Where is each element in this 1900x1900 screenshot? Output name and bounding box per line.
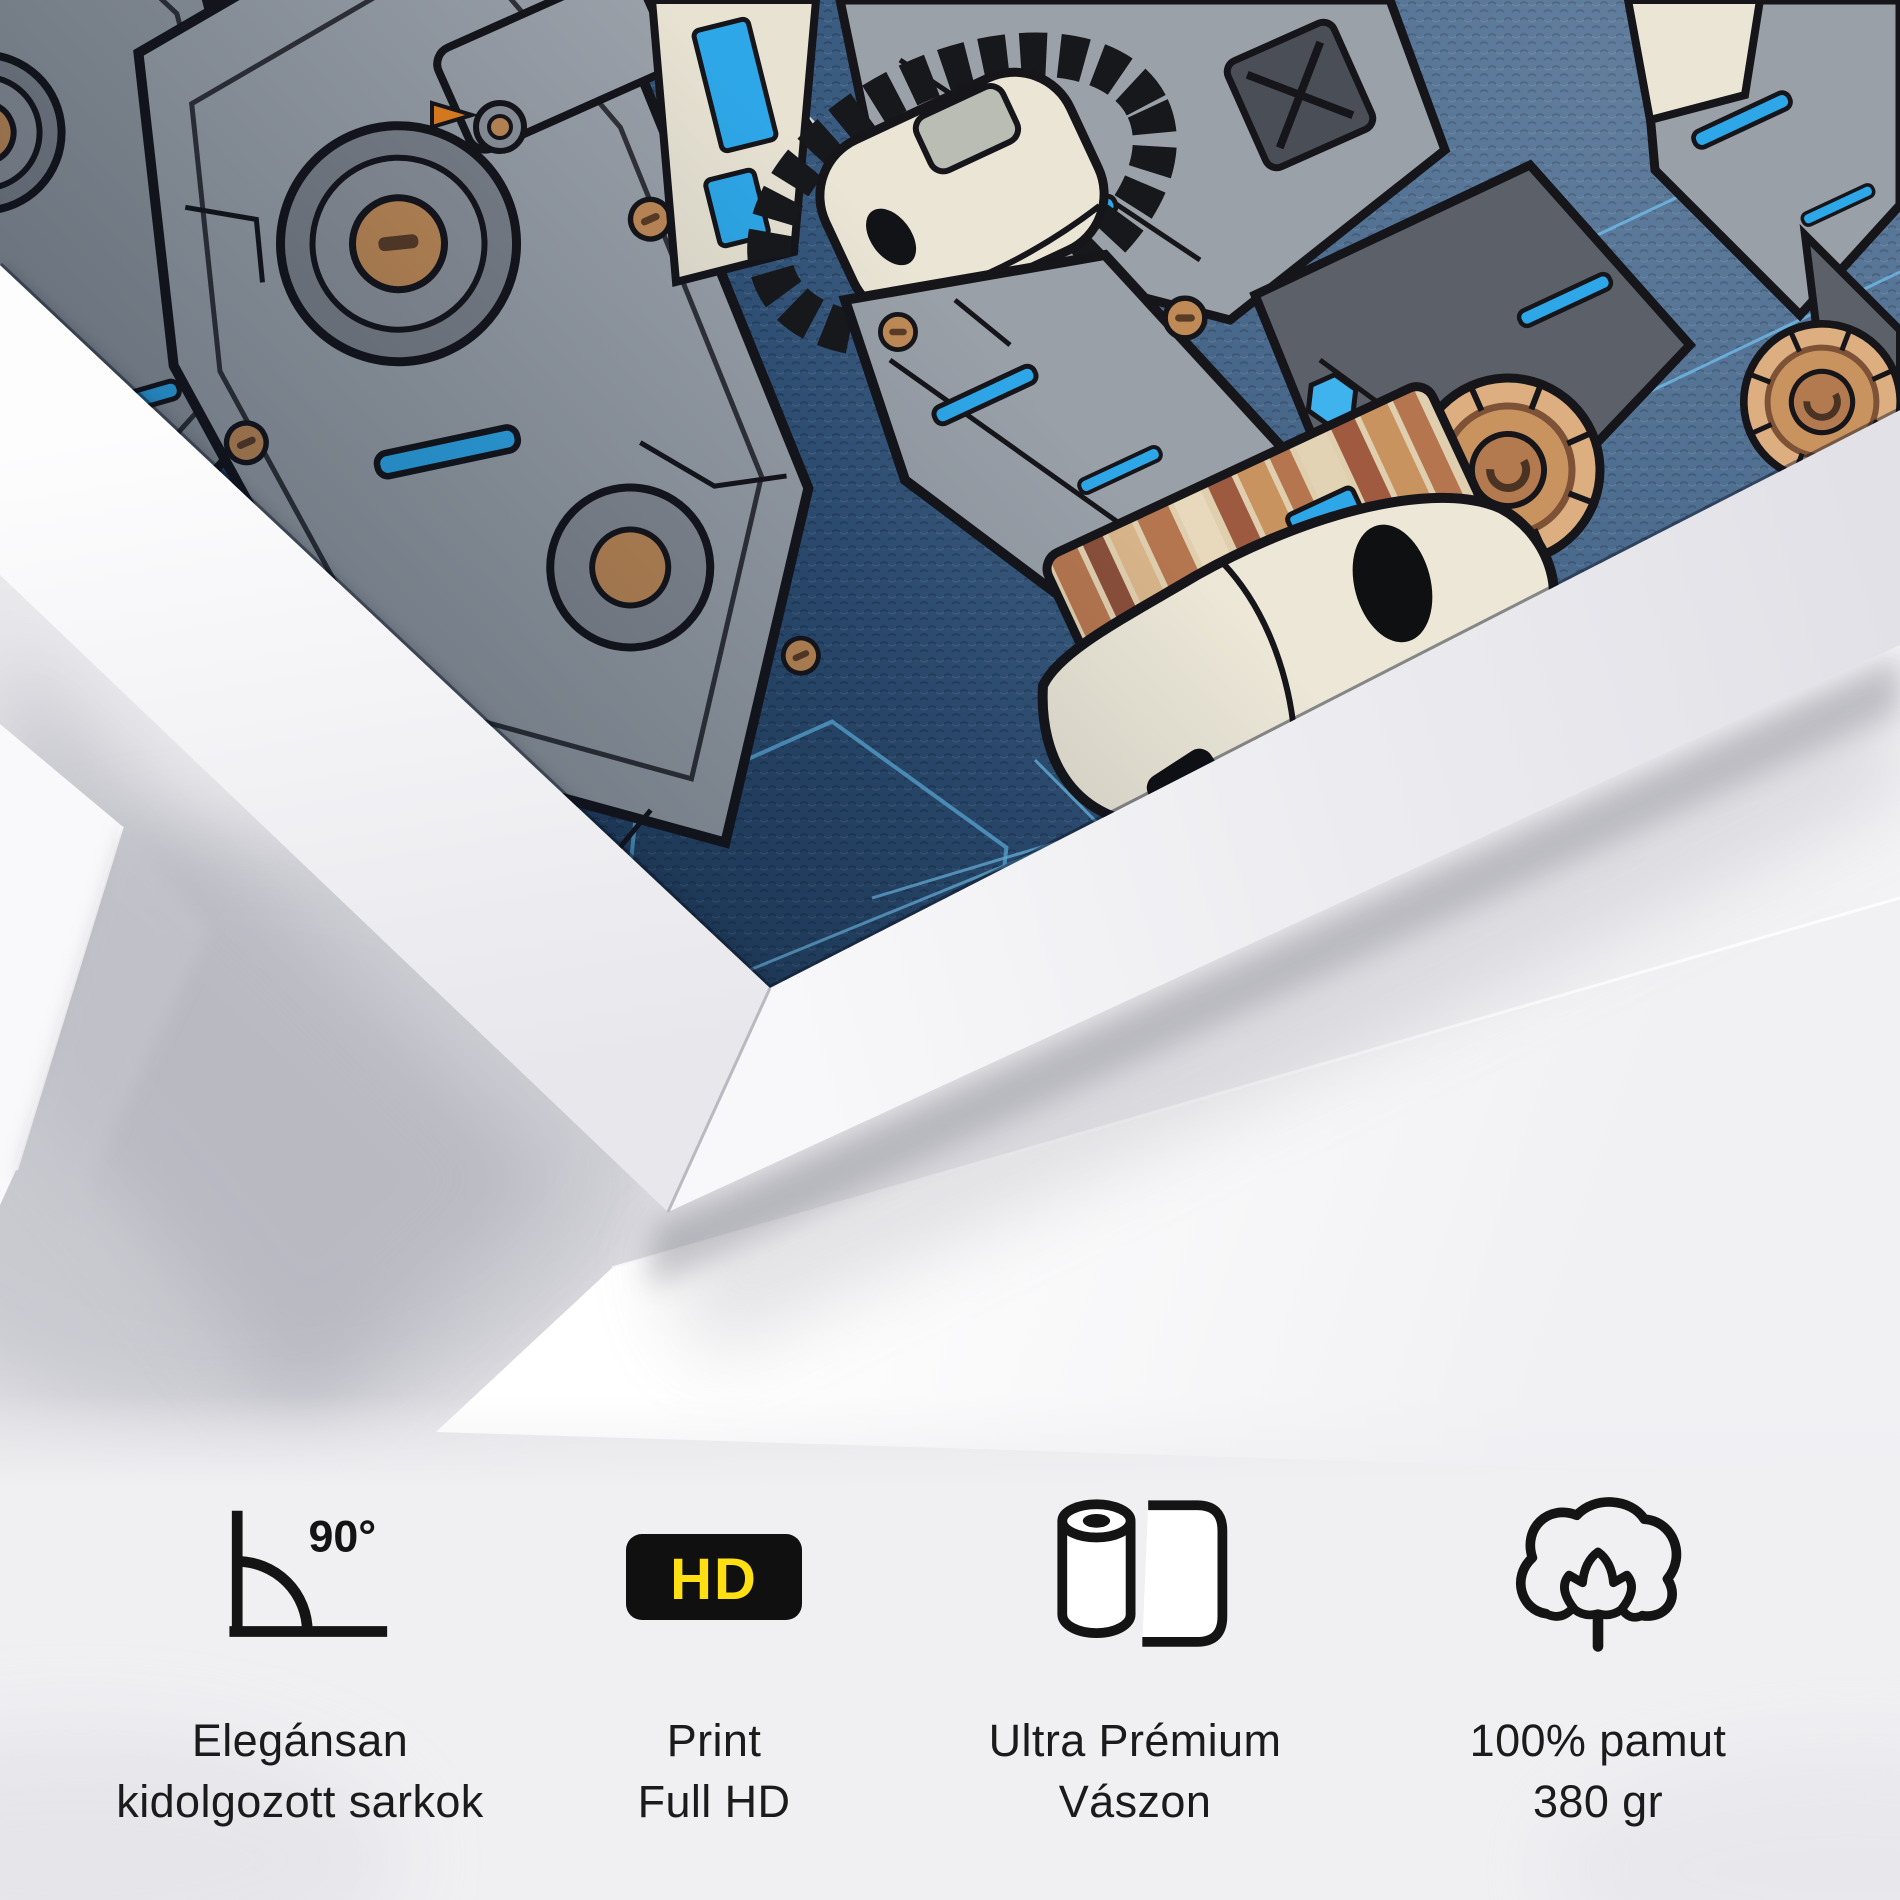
feature-corners: 90° Elegánsan kidolgozott sarkok: [70, 1468, 530, 1832]
feature-cotton-caption: 100% pamut 380 gr: [1368, 1710, 1828, 1832]
feature-canvas-icon-box: [905, 1468, 1365, 1686]
product-mockup-stage: 90° Elegánsan kidolgozott sarkok HD Prin…: [0, 0, 1900, 1900]
angle-label: 90°: [308, 1512, 376, 1562]
hd-badge-label: HD: [670, 1547, 758, 1612]
corner-90-icon: 90°: [208, 1508, 393, 1646]
caption-line: Full HD: [484, 1771, 944, 1832]
feature-cotton-icon-box: [1368, 1468, 1828, 1686]
caption-line: 380 gr: [1368, 1771, 1828, 1832]
feature-cotton: 100% pamut 380 gr: [1368, 1468, 1828, 1832]
feature-corners-caption: Elegánsan kidolgozott sarkok: [70, 1710, 530, 1832]
caption-line: Ultra Prémium: [905, 1710, 1365, 1771]
feature-hd-print: HD Print Full HD: [484, 1468, 944, 1832]
caption-line: 100% pamut: [1368, 1710, 1828, 1771]
caption-line: kidolgozott sarkok: [70, 1771, 530, 1832]
cotton-icon: [1500, 1496, 1696, 1658]
caption-line: Elegánsan: [70, 1710, 530, 1771]
feature-hd-caption: Print Full HD: [484, 1710, 944, 1832]
canvas-roll-icon: [1033, 1491, 1238, 1663]
hd-badge-icon: HD: [625, 1533, 803, 1621]
feature-canvas-caption: Ultra Prémium Vászon: [905, 1710, 1365, 1832]
feature-corners-icon-box: 90°: [70, 1468, 530, 1686]
caption-line: Vászon: [905, 1771, 1365, 1832]
feature-canvas: Ultra Prémium Vászon: [905, 1468, 1365, 1832]
caption-line: Print: [484, 1710, 944, 1771]
feature-hd-icon-box: HD: [484, 1468, 944, 1686]
